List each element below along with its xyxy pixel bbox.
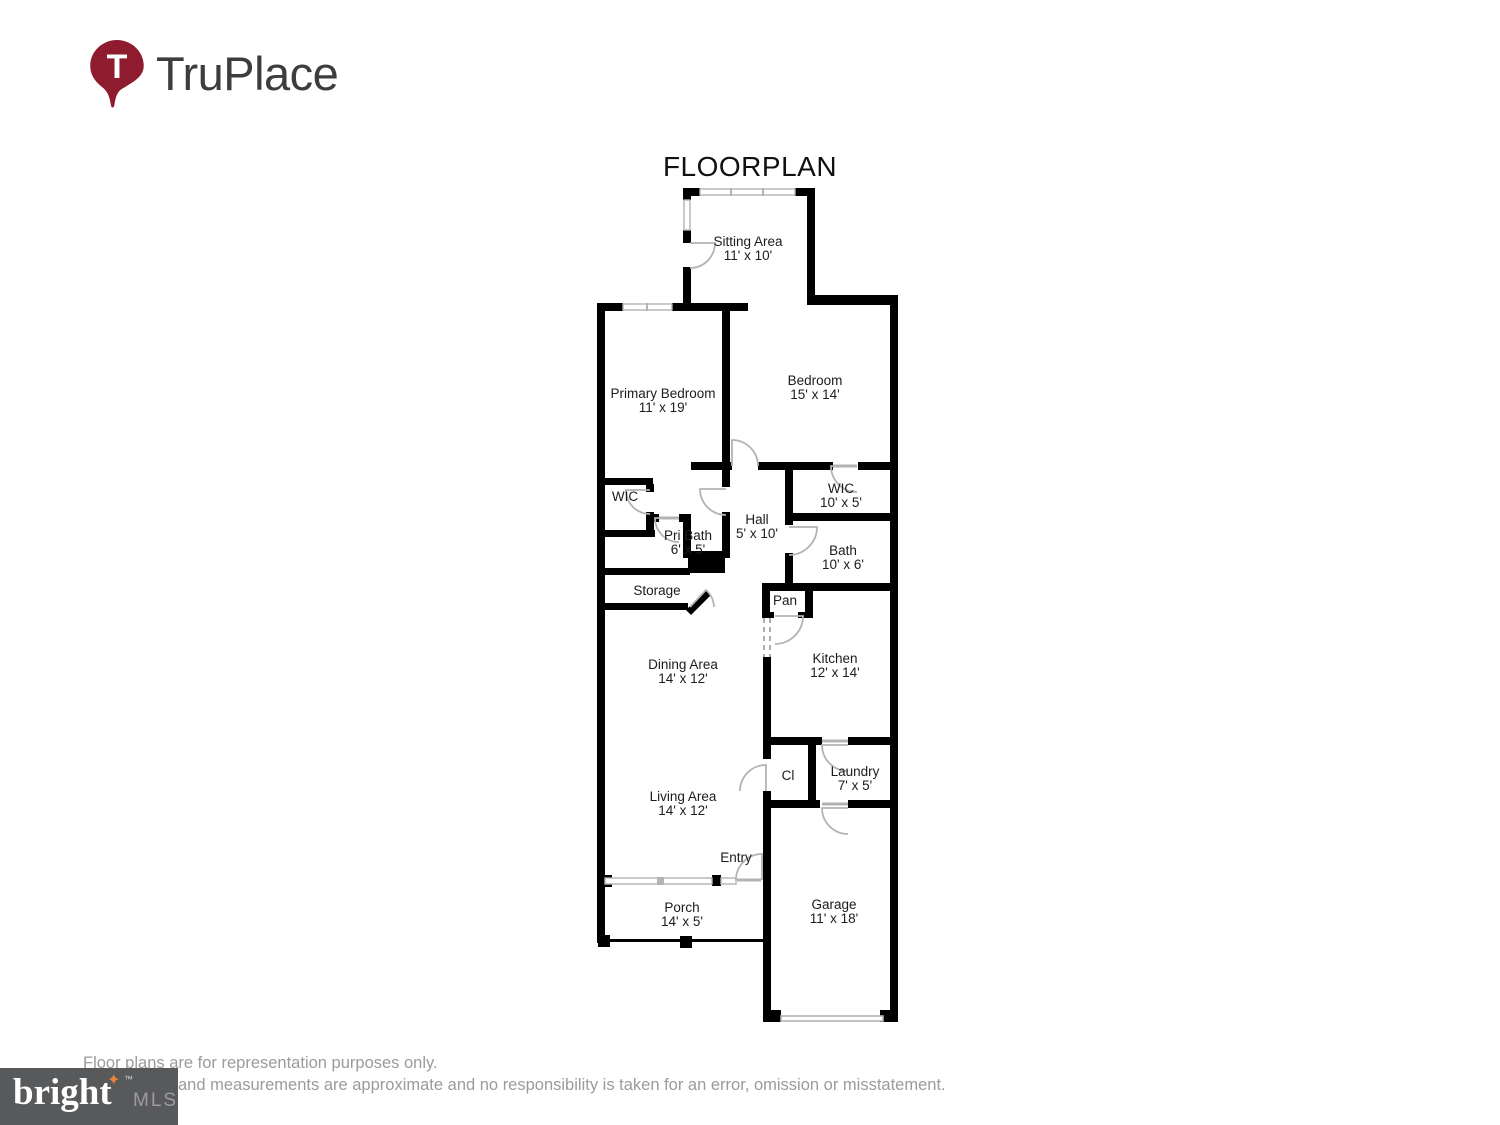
- page: T TruPlace FLOORPLAN: [0, 0, 1500, 1125]
- room-label-laundry: Laundry7' x 5': [831, 765, 880, 792]
- room-label-closet: Cl: [782, 769, 795, 783]
- bright-mls-logo: bright ✦ ™ MLS: [0, 1068, 178, 1125]
- room-label-living-area: Living Area14' x 12': [650, 790, 717, 817]
- bright-mls-suffix-text: MLS: [133, 1090, 178, 1112]
- disclaimer-line2: and measurements are approximate and no …: [178, 1076, 946, 1095]
- trademark-symbol: ™: [124, 1074, 133, 1084]
- room-label-entry: Entry: [720, 851, 752, 865]
- floorplan-drawing: [0, 0, 1500, 1125]
- room-label-hall: Hall5' x 10': [736, 513, 778, 540]
- room-label-bedroom: Bedroom15' x 14': [788, 374, 843, 401]
- room-label-bath: Bath10' x 6': [822, 544, 864, 571]
- room-label-primary-bedroom: Primary Bedroom11' x 19': [610, 387, 715, 414]
- room-label-garage: Garage11' x 18': [810, 898, 858, 925]
- compass-star-icon: ✦: [107, 1070, 120, 1090]
- room-label-sitting-area: Sitting Area11' x 10': [713, 235, 782, 262]
- room-label-wic-left: WIC: [612, 490, 638, 504]
- room-label-pri-bath: Pri Bath6' x 5': [664, 529, 712, 556]
- room-label-storage: Storage: [633, 584, 680, 598]
- room-label-wic-right: WIC10' x 5': [820, 482, 862, 509]
- room-label-porch: Porch14' x 5': [661, 901, 703, 928]
- room-label-dining-area: Dining Area14' x 12': [648, 658, 718, 685]
- open-passage-dashes: [764, 618, 770, 657]
- room-label-pantry: Pan: [773, 594, 797, 608]
- bright-mls-brand-text: bright: [13, 1073, 112, 1113]
- room-label-kitchen: Kitchen12' x 14': [810, 652, 859, 679]
